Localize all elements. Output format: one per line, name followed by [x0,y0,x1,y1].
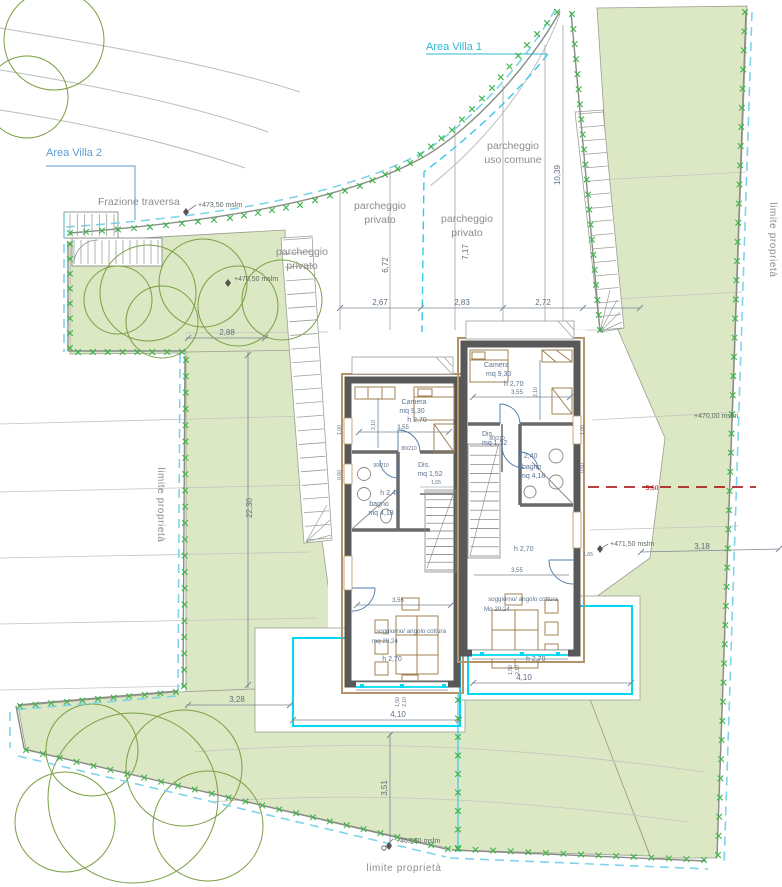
room-bath-h-left: h 2,40 [380,490,400,497]
label-area-villa-1: Area Villa 1 [426,41,482,53]
site-plan-page: Area Villa 1 Area Villa 2 Frazione trave… [0,0,782,887]
dim-5-60-red: 5,60 [646,485,659,492]
room-camera-h-right: h 2,70 [504,381,524,388]
label-parking-private-c1: parcheggio [441,213,493,225]
room-sogg-h-left: h 2,70 [382,656,402,663]
dim-2-67: 2,67 [372,298,388,307]
dim-3-28: 3,28 [229,695,245,704]
label-parking-private-a1: parcheggio [276,246,328,258]
porch-right [466,321,574,339]
dim-2-88: 2,88 [219,328,235,337]
elevation-473-50: +473,50 mslm [198,202,242,209]
dim-1-50-left: 1,50 [395,697,401,707]
label-parking-private-b2: privato [364,214,396,226]
room-floor-h-right: h 2,70 [514,546,534,553]
dim-1-65-right: 1,65 [583,552,593,558]
label-parking-private-a2: privato [286,260,318,272]
door-size-left-2: 90/210 [373,463,389,469]
room-bagno-mq-left: mq 4,18 [368,510,393,517]
label-street: Frazione traversa [98,196,180,208]
dim-3-51: 3,51 [380,780,389,796]
label-area-villa-2: Area Villa 2 [46,147,102,159]
room-dis-left: Dis. [418,462,430,469]
room-bagno-left: bagno [369,501,389,508]
dim-3-55-right-sogg: 3,55 [511,568,523,574]
room-sogg-left: soggiorno/ angolo cottura [376,628,446,635]
interior-dim-right: 2,10 [533,387,539,397]
dim-1-50-right: 1,50 [508,665,514,675]
door-size-left: 80/210 [401,446,417,452]
room-sogg-mq-left: mq 20,24 [372,638,398,645]
label-limite-right: limite proprietà [767,202,778,277]
label-parking-private-b1: parcheggio [354,200,406,212]
label-parking-common-1: parcheggio [487,140,539,152]
label-limite-left: limite proprietà [155,467,166,542]
label-parking-common-2: uso comune [484,154,541,166]
interior-dim-left: 2,10 [371,420,377,430]
villa-right-building [458,321,584,668]
elevation-470-50: +470,50 mslm [234,276,278,283]
elevation-463-50: +463,50 mslm [396,838,440,845]
room-dis-right: Dis. [482,431,494,438]
dim-10-39: 10,39 [553,164,562,185]
room-camera-h-left: h 2,70 [407,417,427,424]
window-dim-r2: 0,60 [580,463,586,473]
room-camera-left: Camera [402,399,427,406]
dim-22-30: 22,30 [245,497,254,518]
room-bath-h-right: h 2,40 [518,453,538,460]
dim-4-10-left: 4,10 [390,710,406,719]
site-plan-svg: Area Villa 1 Area Villa 2 Frazione trave… [0,0,782,887]
dim-1-65-left: 1,65 [431,480,441,486]
room-camera-mq-left: mq 9,30 [399,408,424,415]
dim-2-72: 2,72 [535,298,551,307]
window-dim-r1: 1,00 [580,425,586,435]
room-terrace-h-right: h 2,70 [526,656,546,663]
room-sogg-right: soggiorno/ angolo cottura [488,596,558,603]
window-dim-l1: 1,00 [337,425,343,435]
window-dim-l2: 0,60 [337,470,343,480]
label-parking-private-c2: privato [451,227,483,239]
entry-landing-topleft [64,212,118,238]
room-dis-mq-right: mq 1,52 [482,440,507,447]
room-camera-mq-right: mq 9,30 [486,371,511,378]
dim-3-55-right-camera: 3,55 [511,390,523,396]
room-bagno-right: bagno [522,464,542,471]
elevation-471-50: +471,50 mslm [610,541,654,548]
dim-3-55-left-camera: 3,55 [397,425,409,431]
porch-left [352,357,453,374]
dim-3-18: 3,18 [694,542,710,551]
elevation-470-00: +470,00 mslm [694,413,738,420]
dim-3-55-left-sogg: 3,55 [392,598,404,604]
dim-6-72: 6,72 [381,257,390,273]
dim-2-10-left: 2,10 [402,697,408,707]
room-sogg-mq-right: Mq 20,24 [484,606,510,613]
dim-7-17: 7,17 [461,244,470,260]
label-limite-bottom: limite proprietà [366,863,441,874]
dim-2-10-right: 2,10 [515,665,521,675]
room-bagno-mq-right: mq 4,18 [520,473,545,480]
entry-stair-topleft [72,238,162,266]
dim-2-83: 2,83 [454,298,470,307]
room-dis-mq-left: mq 1,52 [417,471,442,478]
room-camera-right: Camera [484,362,509,369]
